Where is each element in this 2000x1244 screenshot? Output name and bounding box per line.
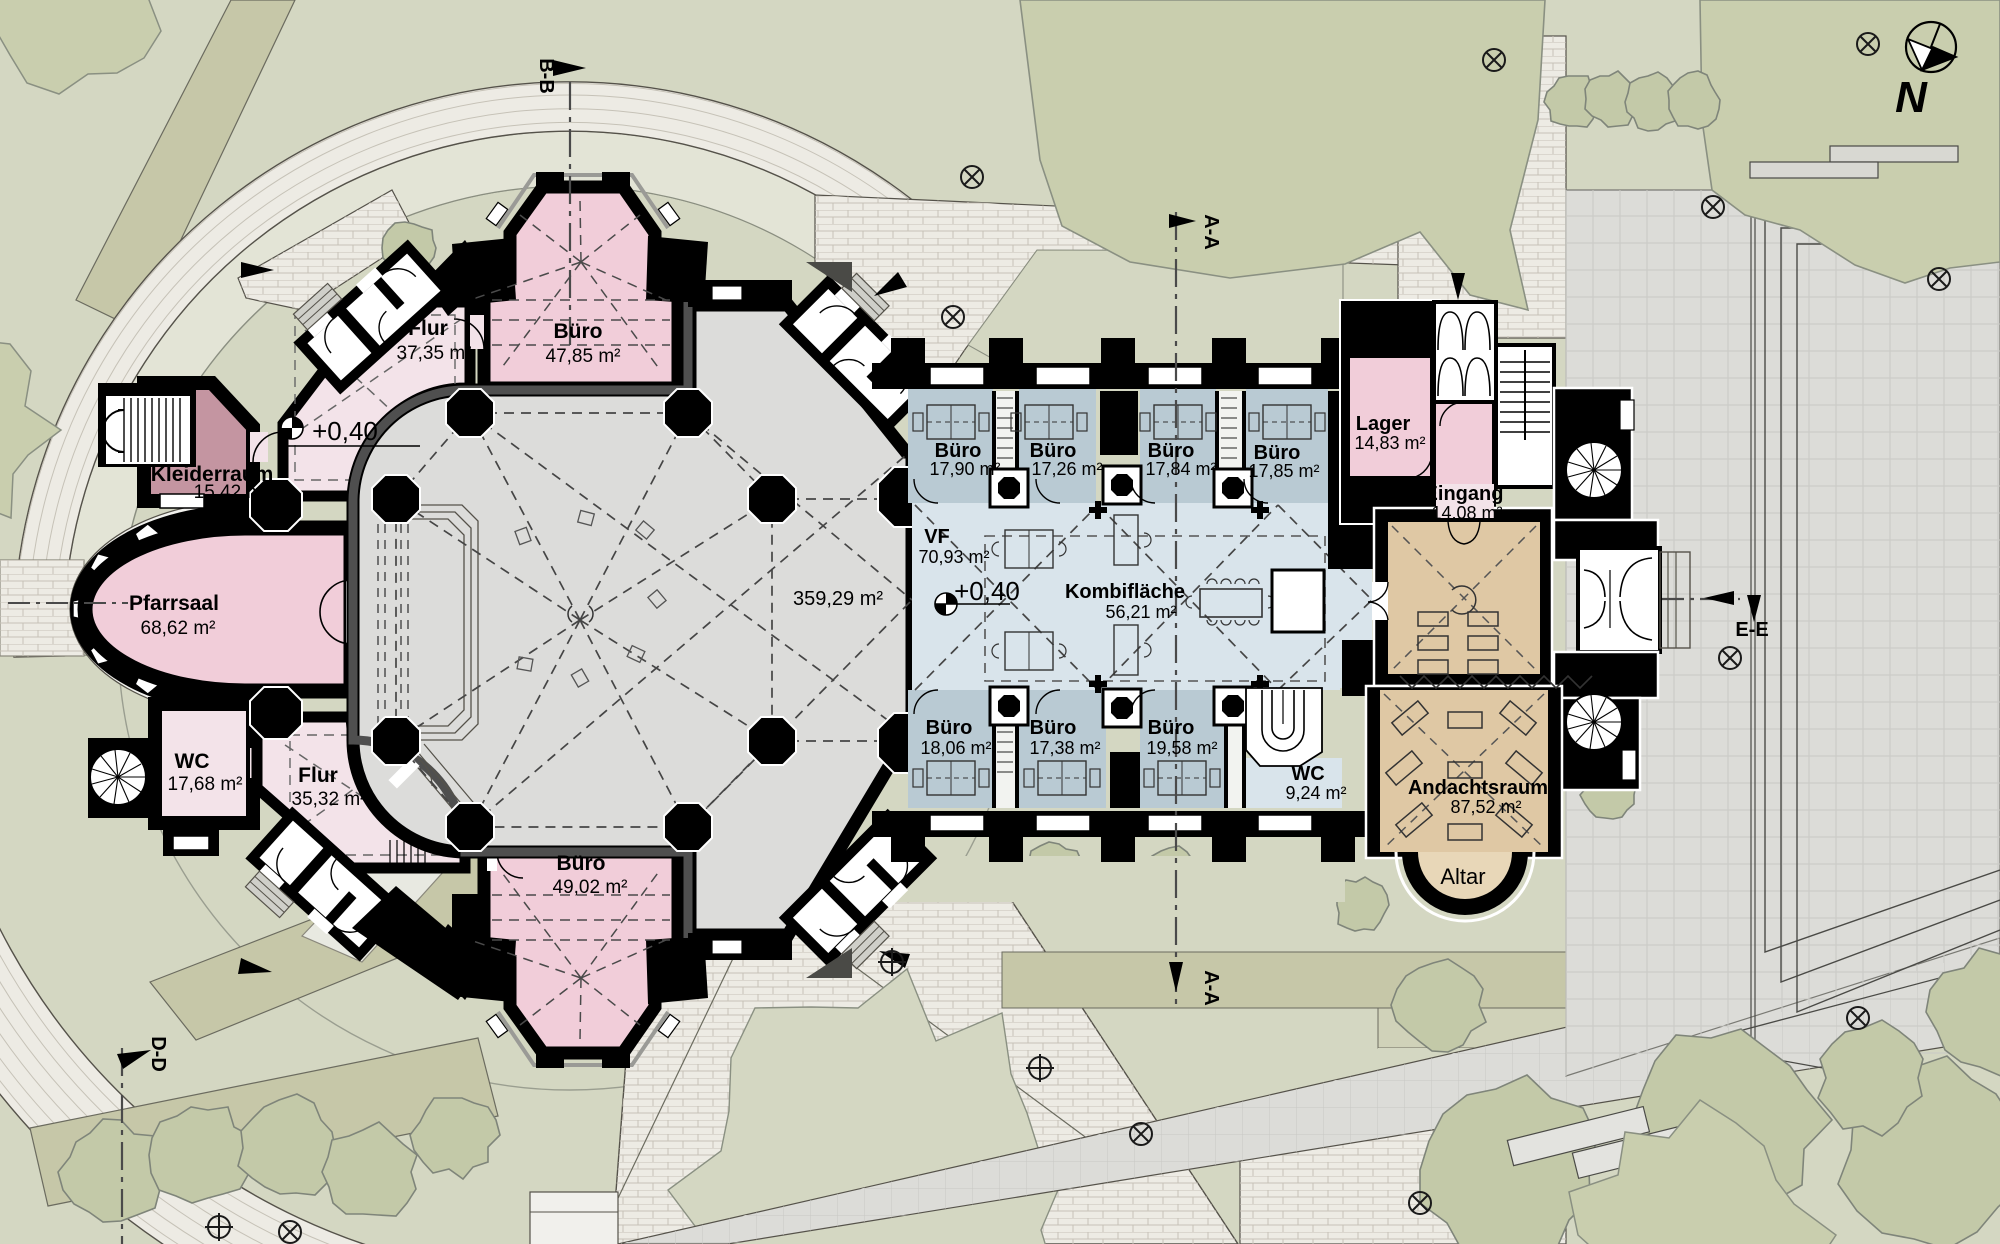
- svg-text:B-B: B-B: [535, 58, 557, 94]
- svg-text:17,84 m²: 17,84 m²: [1145, 459, 1216, 479]
- svg-text:17,90 m²: 17,90 m²: [929, 459, 1000, 479]
- svg-text:Lager: Lager: [1356, 413, 1411, 435]
- svg-text:18,06 m²: 18,06 m²: [920, 738, 991, 758]
- svg-text:15,42 m: 15,42 m: [194, 482, 263, 503]
- svg-text:Flur: Flur: [298, 764, 338, 787]
- svg-text:Eingang: Eingang: [1425, 483, 1504, 505]
- svg-text:Büro: Büro: [557, 852, 606, 875]
- svg-text:Büro: Büro: [1030, 717, 1077, 739]
- svg-text:17,38 m²: 17,38 m²: [1029, 738, 1100, 758]
- svg-text:WC: WC: [175, 750, 210, 773]
- svg-text:14,08 m²: 14,08 m²: [1431, 503, 1502, 523]
- svg-text:17,68 m²: 17,68 m²: [168, 774, 243, 795]
- svg-text:68,62 m²: 68,62 m²: [141, 618, 216, 639]
- svg-text:E-E: E-E: [1735, 619, 1768, 641]
- svg-text:A-A: A-A: [1200, 970, 1222, 1006]
- svg-text:37,35 m²: 37,35 m²: [397, 343, 472, 364]
- svg-text:49,02 m²: 49,02 m²: [553, 877, 628, 898]
- svg-text:87,52 m²: 87,52 m²: [1450, 797, 1521, 817]
- svg-text:47,85 m²: 47,85 m²: [546, 346, 621, 367]
- svg-text:+0,40: +0,40: [312, 416, 378, 446]
- svg-text:17,85 m²: 17,85 m²: [1248, 461, 1319, 481]
- svg-text:A-A: A-A: [1200, 214, 1222, 250]
- svg-text:359,29 m²: 359,29 m²: [793, 588, 883, 610]
- svg-text:Flur: Flur: [408, 317, 448, 340]
- svg-text:Büro: Büro: [554, 320, 603, 343]
- svg-text:Andachtsraum: Andachtsraum: [1408, 777, 1548, 799]
- svg-text:56,21 m²: 56,21 m²: [1105, 602, 1176, 622]
- svg-text:D-D: D-D: [147, 1036, 169, 1072]
- svg-text:9,24 m²: 9,24 m²: [1285, 783, 1346, 803]
- svg-text:N: N: [1895, 73, 1928, 122]
- svg-text:Büro: Büro: [926, 717, 973, 739]
- svg-text:70,93 m²: 70,93 m²: [918, 547, 989, 567]
- svg-text:VF: VF: [924, 526, 950, 548]
- svg-text:Büro: Büro: [1148, 717, 1195, 739]
- svg-text:Kombifläche: Kombifläche: [1065, 581, 1185, 603]
- svg-text:14,83 m²: 14,83 m²: [1354, 433, 1425, 453]
- svg-text:WC: WC: [1291, 763, 1324, 785]
- svg-text:35,32 m²: 35,32 m²: [292, 789, 367, 810]
- svg-text:17,26 m²: 17,26 m²: [1031, 459, 1102, 479]
- svg-text:+0,40: +0,40: [954, 576, 1020, 606]
- svg-text:Altar: Altar: [1440, 864, 1485, 889]
- svg-text:Pfarrsaal: Pfarrsaal: [129, 592, 219, 615]
- svg-text:19,58 m²: 19,58 m²: [1146, 738, 1217, 758]
